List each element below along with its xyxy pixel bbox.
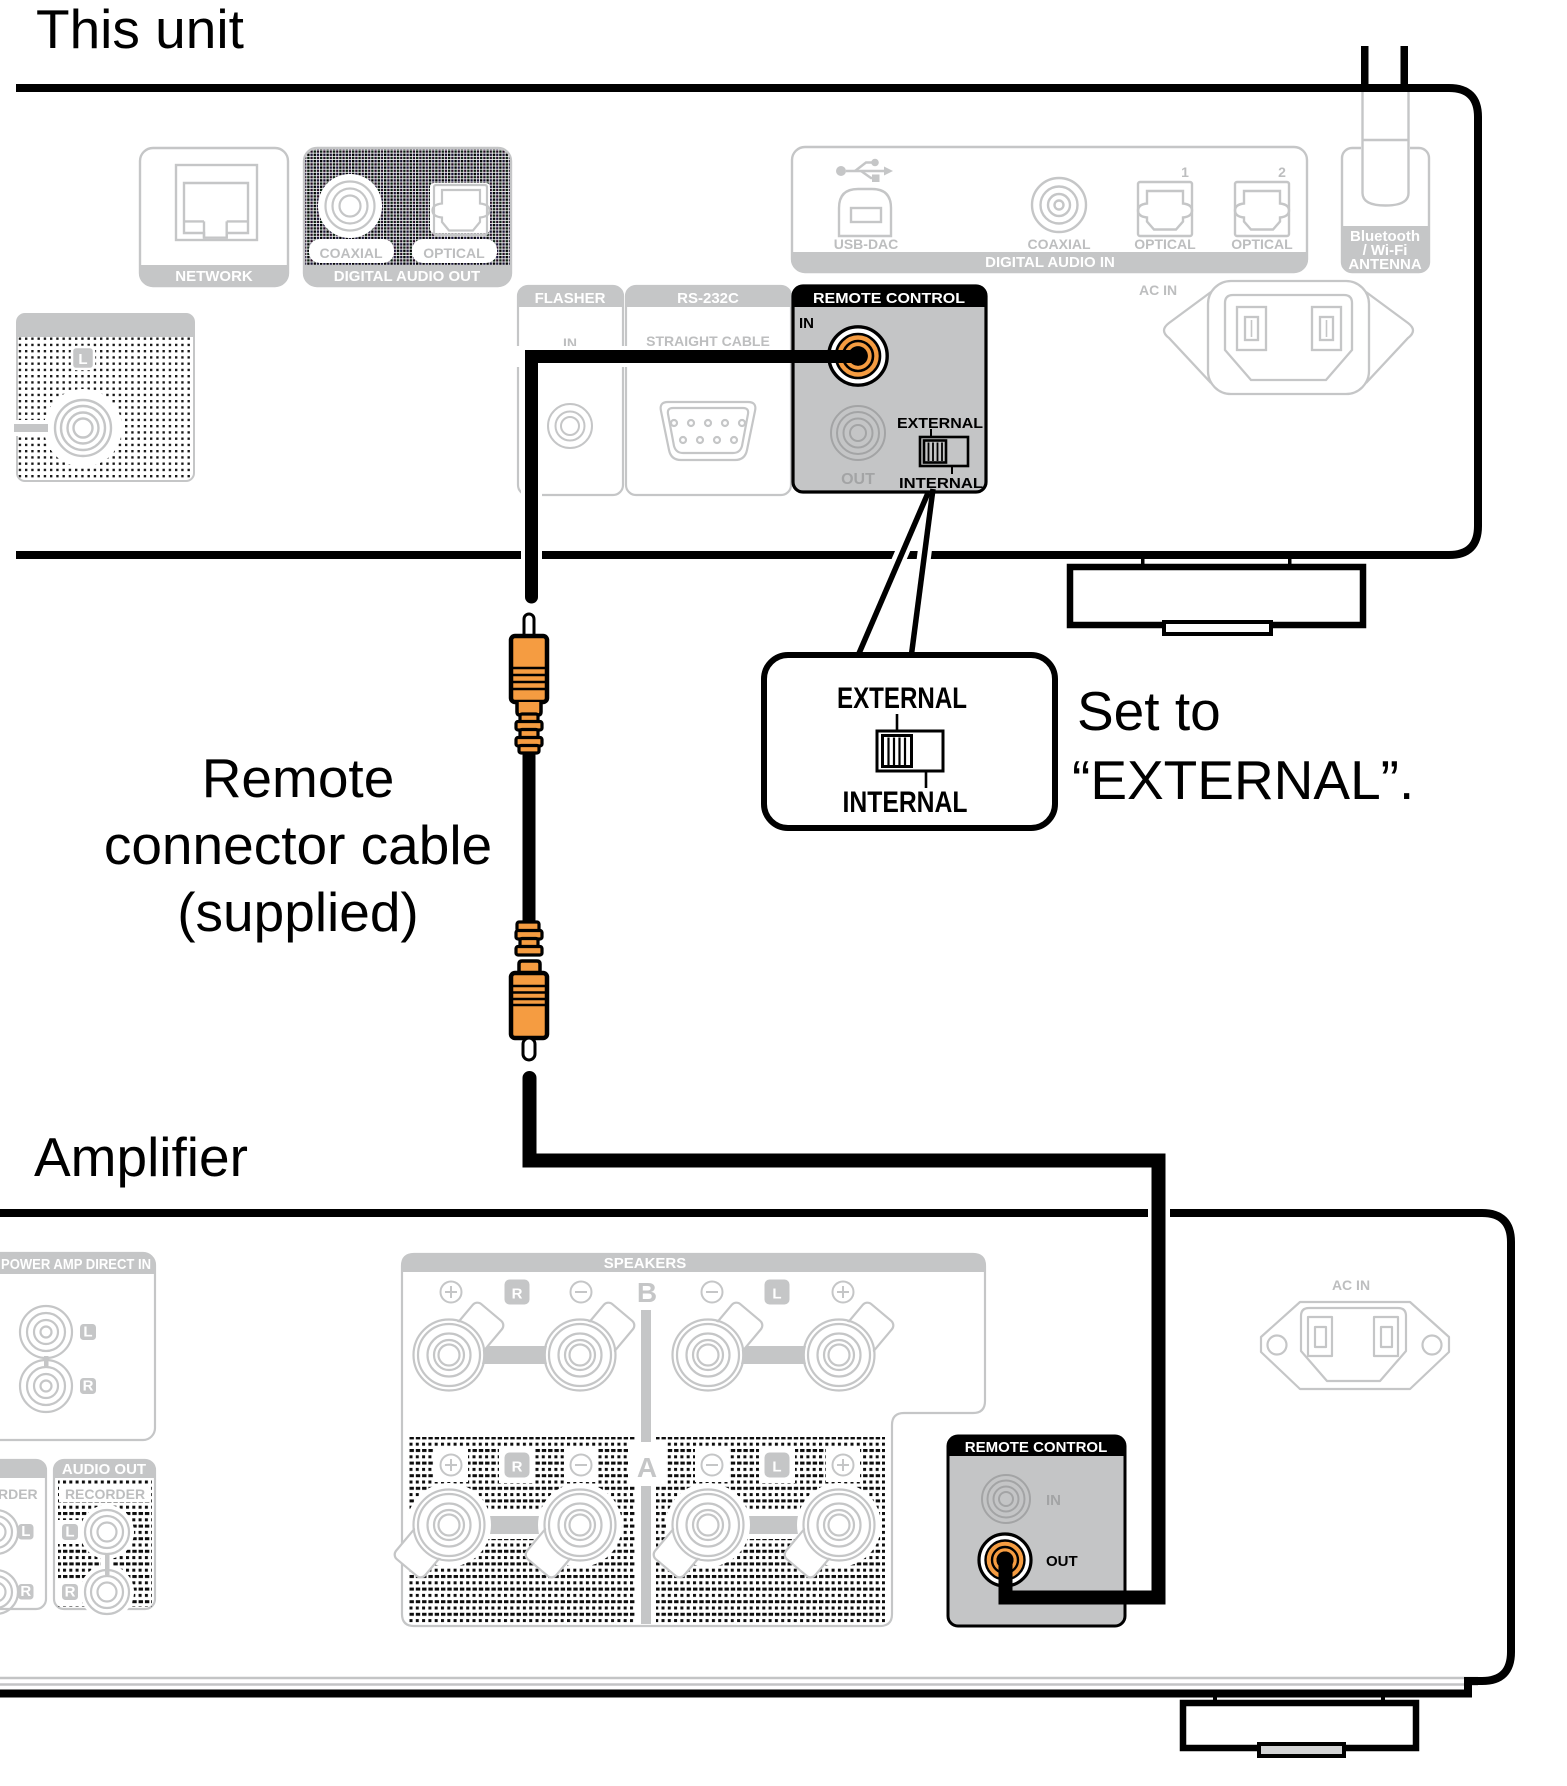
- svg-text:ANTENNA: ANTENNA: [1348, 256, 1421, 273]
- svg-text:1: 1: [1181, 164, 1189, 180]
- svg-text:Set to: Set to: [1077, 680, 1221, 742]
- svg-text:RS-232C: RS-232C: [677, 290, 739, 307]
- svg-text:DIGITAL AUDIO IN: DIGITAL AUDIO IN: [985, 254, 1115, 271]
- svg-text:NETWORK: NETWORK: [175, 268, 253, 285]
- svg-text:A: A: [637, 1452, 657, 1483]
- svg-text:IN: IN: [1046, 1492, 1061, 1509]
- svg-text:AUDIO OUT: AUDIO OUT: [62, 1461, 146, 1478]
- svg-text:COAXIAL: COAXIAL: [320, 245, 383, 261]
- svg-text:EXTERNAL: EXTERNAL: [897, 415, 983, 432]
- svg-text:B: B: [637, 1277, 657, 1308]
- svg-text:REMOTE CONTROL: REMOTE CONTROL: [965, 1439, 1108, 1456]
- svg-text:AC IN: AC IN: [1332, 1277, 1370, 1293]
- svg-text:USB-DAC: USB-DAC: [834, 236, 899, 252]
- svg-text:This unit: This unit: [36, 0, 244, 60]
- svg-text:FLASHER: FLASHER: [535, 290, 606, 307]
- svg-text:IN: IN: [799, 315, 814, 332]
- svg-text:L: L: [65, 1524, 74, 1541]
- svg-text:INTERNAL: INTERNAL: [843, 786, 968, 819]
- svg-text:OPTICAL: OPTICAL: [1231, 236, 1293, 252]
- svg-text:L: L: [78, 351, 87, 368]
- svg-text:L: L: [772, 1459, 781, 1476]
- svg-text:EXTERNAL: EXTERNAL: [837, 682, 967, 715]
- svg-text:REMOTE CONTROL: REMOTE CONTROL: [813, 290, 965, 307]
- svg-text:R: R: [83, 1378, 94, 1395]
- svg-text:SPEAKERS: SPEAKERS: [604, 1255, 687, 1272]
- svg-text:AC IN: AC IN: [1139, 282, 1177, 298]
- svg-text:RECORDER: RECORDER: [65, 1486, 145, 1502]
- svg-text:R: R: [20, 1583, 31, 1600]
- svg-text:POWER AMP DIRECT IN: POWER AMP DIRECT IN: [1, 1256, 151, 1273]
- svg-text:OUT: OUT: [1046, 1553, 1078, 1570]
- svg-text:L: L: [21, 1523, 30, 1540]
- svg-text:RDER: RDER: [0, 1486, 38, 1502]
- svg-text:connector cable: connector cable: [104, 814, 492, 876]
- svg-text:L: L: [772, 1286, 781, 1303]
- svg-text:R: R: [512, 1459, 523, 1476]
- svg-text:OUT: OUT: [841, 471, 875, 488]
- svg-text:Amplifier: Amplifier: [34, 1126, 248, 1188]
- svg-text:“EXTERNAL”.: “EXTERNAL”.: [1072, 749, 1414, 811]
- svg-text:Remote: Remote: [202, 747, 395, 809]
- svg-text:OPTICAL: OPTICAL: [423, 245, 485, 261]
- svg-text:OPTICAL: OPTICAL: [1134, 236, 1196, 252]
- svg-text:(supplied): (supplied): [177, 881, 419, 943]
- svg-text:R: R: [512, 1286, 523, 1303]
- svg-text:2: 2: [1278, 164, 1286, 180]
- svg-text:INTERNAL: INTERNAL: [899, 475, 983, 492]
- svg-text:L: L: [83, 1324, 92, 1341]
- svg-text:R: R: [65, 1584, 76, 1601]
- svg-text:COAXIAL: COAXIAL: [1028, 236, 1091, 252]
- svg-text:DIGITAL AUDIO OUT: DIGITAL AUDIO OUT: [334, 268, 480, 285]
